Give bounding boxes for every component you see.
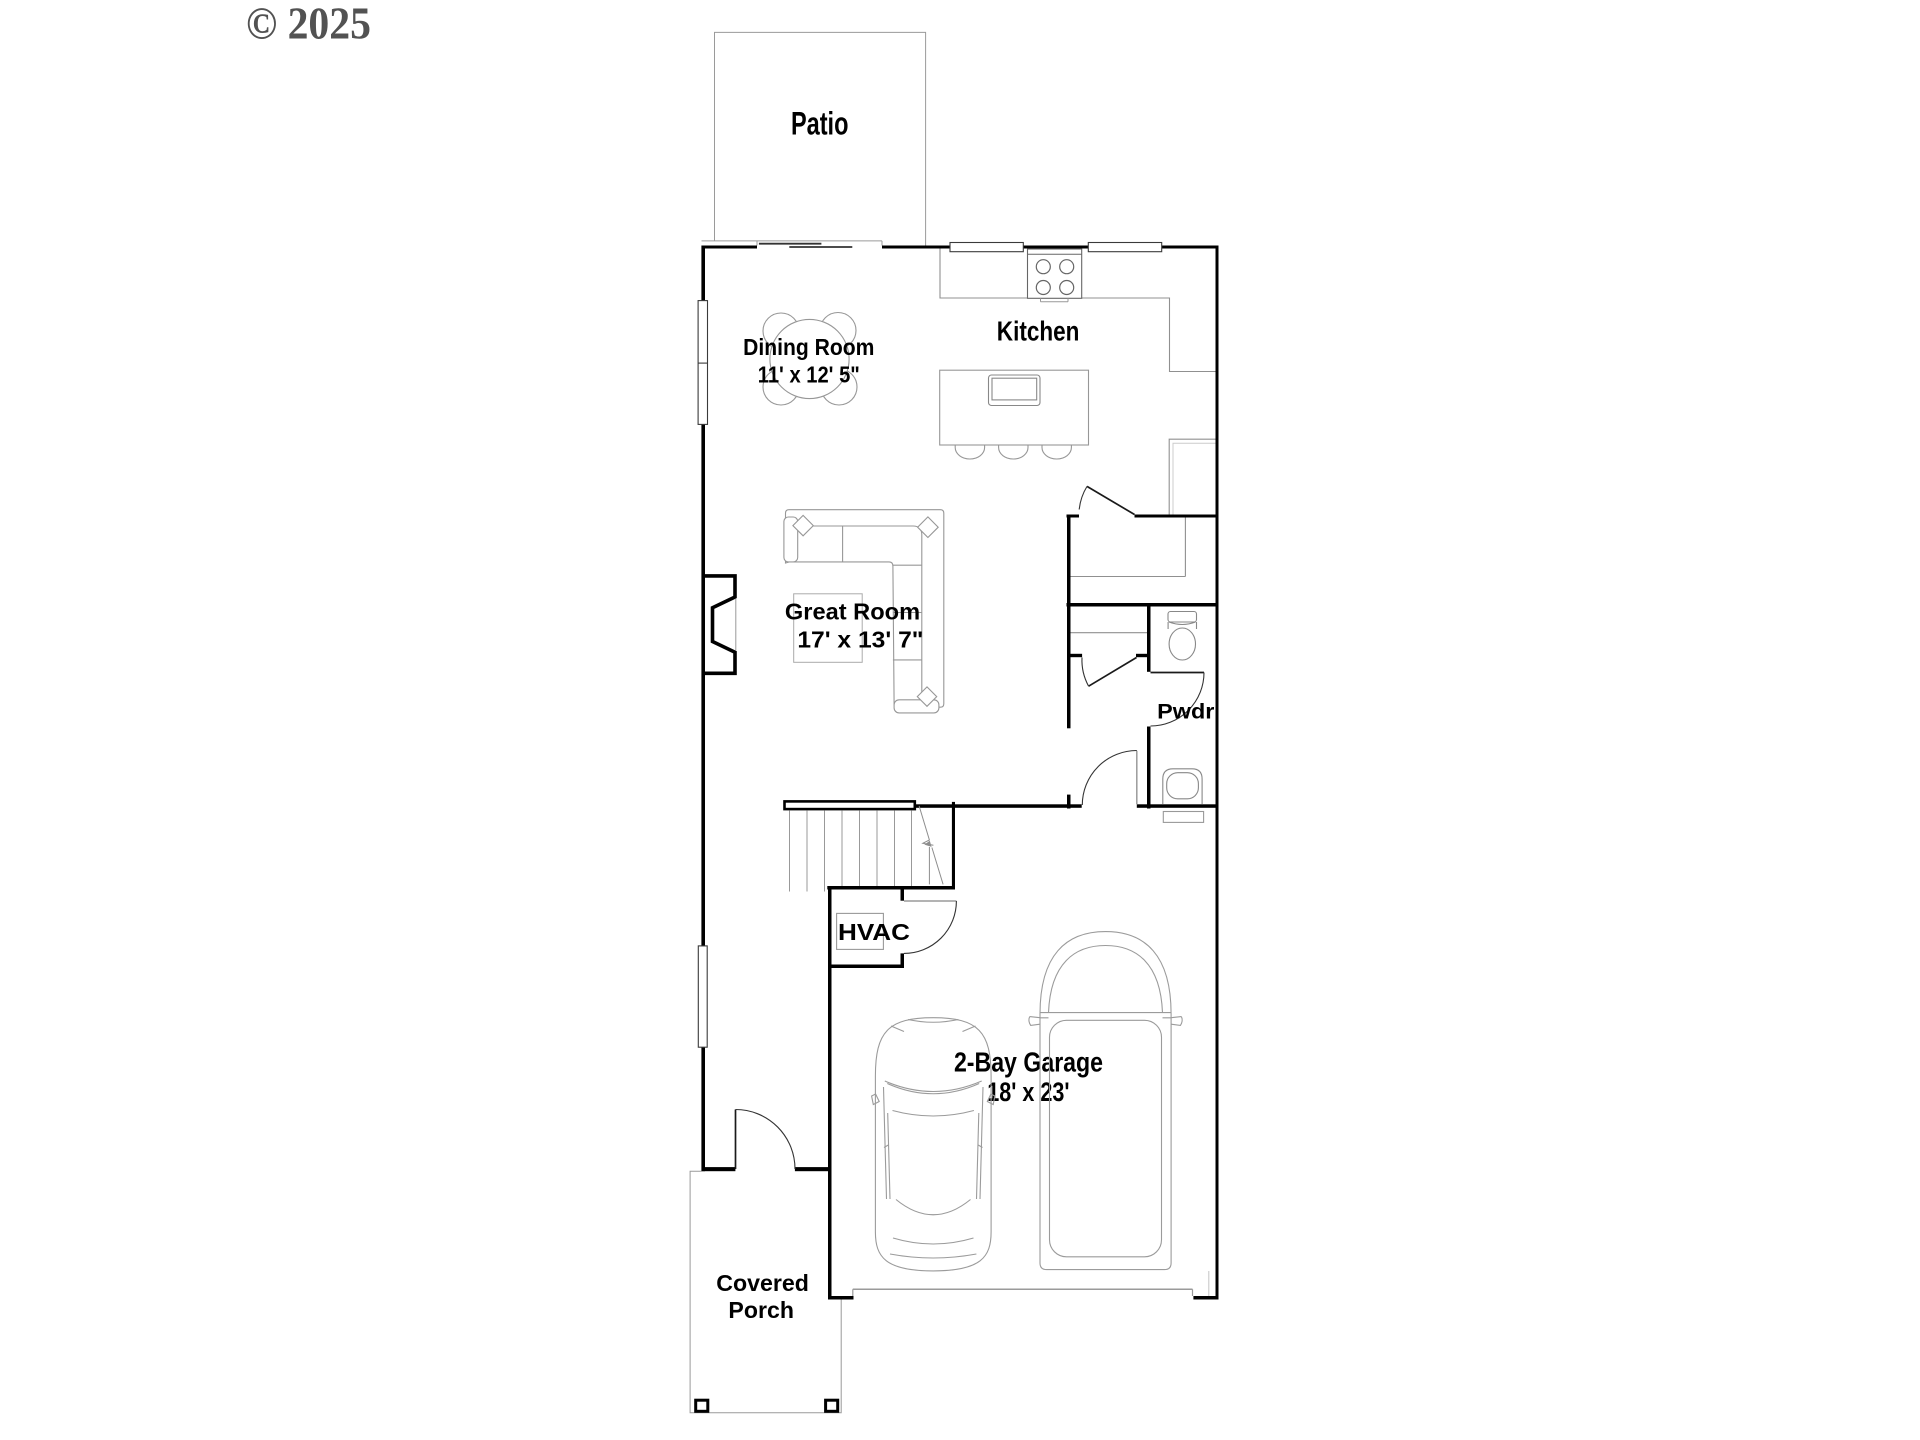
svg-text:2-Bay Garage: 2-Bay Garage — [954, 1047, 1103, 1078]
svg-text:© 2025: © 2025 — [246, 0, 371, 49]
svg-text:Covered: Covered — [716, 1270, 809, 1296]
svg-text:Porch: Porch — [728, 1297, 794, 1323]
svg-text:17' x 13' 7": 17' x 13' 7" — [797, 627, 923, 653]
svg-text:Patio: Patio — [791, 106, 849, 142]
svg-text:Pwdr: Pwdr — [1157, 700, 1214, 723]
svg-text:Great Room: Great Room — [785, 599, 920, 625]
svg-text:Kitchen: Kitchen — [997, 315, 1080, 346]
svg-text:Dining Room: Dining Room — [743, 334, 874, 360]
svg-text:HVAC: HVAC — [838, 919, 910, 945]
svg-text:18' x 23': 18' x 23' — [987, 1077, 1069, 1107]
svg-text:11' x 12' 5": 11' x 12' 5" — [758, 362, 860, 388]
